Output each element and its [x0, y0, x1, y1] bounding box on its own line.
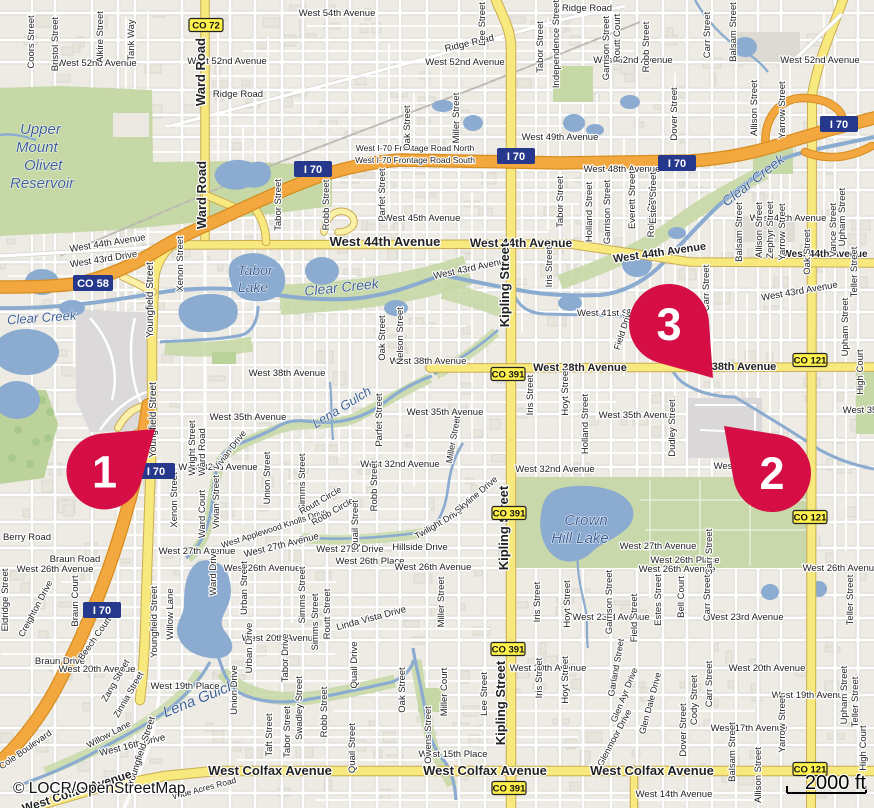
svg-text:Tabor Street: Tabor Street [555, 176, 566, 228]
svg-text:Dover Street: Dover Street [678, 703, 689, 757]
svg-text:Xenon Street: Xenon Street [169, 472, 180, 528]
svg-text:Allison Street: Allison Street [754, 202, 765, 258]
svg-text:Alkire Street: Alkire Street [95, 11, 106, 63]
svg-text:Owens Street: Owens Street [423, 706, 434, 764]
svg-text:West I-70 Frontage Road South: West I-70 Frontage Road South [355, 155, 475, 165]
svg-text:CO 391: CO 391 [492, 645, 525, 656]
svg-text:Carr Street: Carr Street [704, 528, 715, 575]
svg-text:Allison Street: Allison Street [753, 747, 764, 803]
svg-text:Garrison Street: Garrison Street [601, 15, 612, 80]
svg-text:West 26th Avenue: West 26th Avenue [224, 563, 301, 574]
svg-text:Iris Street: Iris Street [532, 581, 543, 622]
svg-text:Garrison Street: Garrison Street [604, 569, 615, 634]
svg-text:I 70: I 70 [304, 164, 322, 176]
svg-text:Union Drive: Union Drive [229, 665, 240, 715]
svg-text:CO 121: CO 121 [794, 356, 827, 367]
svg-text:38th Avenue: 38th Avenue [712, 361, 777, 373]
svg-text:Tabor Street: Tabor Street [282, 706, 293, 758]
svg-text:Oak Street: Oak Street [802, 229, 813, 275]
svg-text:West 14th Avenue: West 14th Avenue [636, 789, 713, 800]
svg-text:Berry Road: Berry Road [3, 532, 51, 543]
svg-text:Willow Lane: Willow Lane [165, 588, 176, 639]
svg-text:West 19th Place: West 19th Place [150, 681, 219, 692]
svg-text:CO 72: CO 72 [192, 21, 219, 32]
svg-text:Lee Street: Lee Street [479, 672, 490, 716]
svg-text:West 20th Avenue: West 20th Avenue [510, 663, 587, 674]
svg-text:Allison Street: Allison Street [749, 80, 760, 136]
svg-text:West 20th Avenue: West 20th Avenue [729, 663, 806, 674]
svg-text:West 44th Avenue: West 44th Avenue [330, 234, 441, 249]
svg-text:Bristol Street: Bristol Street [50, 16, 61, 71]
svg-text:Upper: Upper [20, 121, 62, 138]
svg-text:Miller Street: Miller Street [451, 92, 462, 143]
svg-text:CO 391: CO 391 [492, 370, 525, 381]
svg-text:Cody Street: Cody Street [689, 675, 700, 726]
svg-text:Teller Street: Teller Street [849, 246, 860, 297]
svg-text:Xenon Street: Xenon Street [175, 236, 186, 292]
svg-text:West 26th Avenue: West 26th Avenue [395, 562, 472, 573]
svg-text:Youngfield Street: Youngfield Street [149, 586, 160, 658]
svg-text:Tabor: Tabor [237, 262, 274, 278]
svg-text:CO 58: CO 58 [77, 278, 109, 290]
svg-text:West 54th Avenue: West 54th Avenue [299, 8, 376, 19]
svg-text:Hillside Drive: Hillside Drive [392, 542, 447, 553]
svg-text:Robb Street: Robb Street [369, 460, 380, 511]
svg-text:Swadley Street: Swadley Street [294, 676, 305, 740]
svg-text:Hoyt Street: Hoyt Street [560, 368, 571, 416]
svg-text:Oak Street: Oak Street [397, 667, 408, 713]
svg-text:West 35th Avenue: West 35th Avenue [599, 410, 676, 421]
svg-text:Simms Street: Simms Street [310, 593, 321, 650]
svg-text:Ward Drive: Ward Drive [208, 548, 219, 595]
svg-text:Zephyr Street: Zephyr Street [765, 201, 776, 259]
svg-text:Iris Street: Iris Street [525, 374, 536, 415]
svg-text:Lake: Lake [238, 279, 269, 295]
svg-text:Olivet: Olivet [24, 157, 63, 174]
svg-text:West 26th Avenue: West 26th Avenue [17, 564, 94, 575]
svg-text:Braun Road: Braun Road [50, 554, 101, 565]
svg-text:Teller Street: Teller Street [850, 676, 861, 727]
svg-text:High Court: High Court [858, 725, 869, 771]
svg-text:West 35th Avenue: West 35th Avenue [407, 407, 484, 418]
svg-text:Ward Court: Ward Court [197, 490, 208, 539]
svg-text:Independence Street: Independence Street [551, 0, 562, 88]
svg-text:West 35th Avenue: West 35th Avenue [210, 412, 287, 423]
svg-text:Tabor Street: Tabor Street [273, 179, 284, 231]
svg-text:Vivian Street: Vivian Street [211, 475, 222, 529]
svg-text:Robb Street: Robb Street [321, 179, 332, 230]
svg-text:Upham Street: Upham Street [839, 665, 850, 724]
svg-text:Lee Street: Lee Street [477, 2, 488, 46]
svg-text:Tabor Drive: Tabor Drive [280, 634, 291, 683]
svg-text:Robb Street: Robb Street [319, 686, 330, 737]
svg-text:Upham Street: Upham Street [840, 297, 851, 356]
svg-text:Dover Street: Dover Street [669, 87, 680, 141]
svg-text:3: 3 [656, 299, 681, 350]
svg-text:Carr Street: Carr Street [702, 11, 713, 58]
svg-text:Holland Street: Holland Street [584, 182, 595, 243]
svg-text:2000 ft: 2000 ft [805, 772, 867, 794]
svg-text:Estes Street: Estes Street [648, 172, 659, 224]
svg-text:Ridge Road: Ridge Road [213, 89, 263, 100]
svg-text:West Colfax Avenue: West Colfax Avenue [423, 763, 547, 778]
svg-text:Yarrow Street: Yarrow Street [777, 203, 788, 261]
svg-text:Garrison Street: Garrison Street [602, 179, 613, 244]
svg-text:Yarrow Street: Yarrow Street [777, 695, 788, 753]
svg-text:Mount: Mount [16, 139, 59, 156]
svg-text:West 44th Avenue: West 44th Avenue [470, 236, 573, 250]
svg-text:West 45th Avenue: West 45th Avenue [384, 213, 461, 224]
svg-text:Teller Street: Teller Street [845, 574, 856, 625]
svg-text:Coors Street: Coors Street [26, 15, 37, 69]
svg-text:I 70: I 70 [147, 466, 165, 478]
svg-text:Hill Lake: Hill Lake [551, 530, 609, 547]
svg-text:Routt Street: Routt Street [322, 588, 333, 639]
svg-text:West I-70 Frontage Road North: West I-70 Frontage Road North [356, 143, 475, 153]
svg-text:West 35: West 35 [843, 405, 874, 416]
svg-text:Holland Street: Holland Street [580, 394, 591, 455]
svg-text:Hoyt Street: Hoyt Street [562, 580, 573, 628]
svg-text:I 70: I 70 [830, 119, 848, 131]
svg-text:Ridge Road: Ridge Road [562, 3, 612, 14]
svg-text:Robb Street: Robb Street [641, 21, 652, 72]
svg-text:Tabor Street: Tabor Street [535, 21, 546, 73]
svg-text:High Court: High Court [855, 349, 866, 395]
svg-text:Urban Street: Urban Street [239, 561, 250, 615]
svg-text:West 26th Avenue: West 26th Avenue [803, 563, 874, 574]
svg-text:Kipling Street: Kipling Street [496, 485, 511, 570]
svg-text:West 27th Avenue: West 27th Avenue [620, 541, 697, 552]
svg-text:Iris Street: Iris Street [544, 246, 555, 287]
svg-text:Wes: Wes [714, 461, 733, 472]
svg-text:Routt Court: Routt Court [612, 13, 623, 62]
svg-text:Oak Street: Oak Street [377, 315, 388, 361]
svg-text:Tank Way: Tank Way [126, 19, 137, 61]
svg-text:Kipling Street: Kipling Street [497, 242, 512, 327]
svg-text:Balsam Street: Balsam Street [727, 722, 738, 782]
svg-text:Crown: Crown [564, 512, 607, 529]
svg-text:Field Street: Field Street [629, 593, 640, 642]
svg-text:Ward Road: Ward Road [194, 161, 209, 229]
svg-text:Hoyt Street: Hoyt Street [560, 656, 571, 704]
svg-text:Kipling Street: Kipling Street [493, 660, 508, 745]
svg-text:West 17th Avenue: West 17th Avenue [711, 723, 788, 734]
svg-text:West 23rd Avenue: West 23rd Avenue [706, 612, 783, 623]
svg-text:Youngfield Street: Youngfield Street [145, 262, 156, 338]
svg-text:Bell Court: Bell Court [676, 576, 687, 618]
svg-text:Taft Street: Taft Street [264, 713, 275, 757]
svg-text:Miller Street: Miller Street [436, 576, 447, 627]
svg-text:CO 391: CO 391 [493, 784, 526, 795]
svg-text:Quail Street: Quail Street [350, 500, 361, 551]
svg-text:Quail Drive: Quail Drive [349, 642, 360, 689]
svg-text:Iris Street: Iris Street [534, 657, 545, 698]
svg-text:West 52nd Avenue: West 52nd Avenue [780, 55, 859, 66]
svg-text:Balsam Street: Balsam Street [728, 2, 739, 62]
svg-text:Balsam Street: Balsam Street [734, 202, 745, 262]
svg-text:Miller Court: Miller Court [439, 667, 450, 716]
svg-text:West Colfax Avenue: West Colfax Avenue [590, 763, 714, 778]
svg-text:Urban Drive: Urban Drive [244, 623, 255, 674]
svg-text:Parfet Street: Parfet Street [377, 168, 388, 222]
svg-text:I 70: I 70 [507, 151, 525, 163]
svg-text:Dudley Street: Dudley Street [667, 399, 678, 457]
svg-text:West 32nd Avenue: West 32nd Avenue [515, 464, 594, 475]
svg-text:Ward Road: Ward Road [197, 428, 208, 476]
svg-text:Yarrow Street: Yarrow Street [777, 81, 788, 139]
svg-text:West 52nd Avenue: West 52nd Avenue [425, 57, 504, 68]
svg-text:Upham Street: Upham Street [837, 187, 848, 246]
svg-text:Nelson Street: Nelson Street [395, 307, 406, 365]
svg-text:1: 1 [92, 447, 117, 498]
svg-text:CO 121: CO 121 [794, 513, 827, 524]
svg-text:West 49th Avenue: West 49th Avenue [522, 132, 599, 143]
svg-text:Parfet Street: Parfet Street [374, 393, 385, 447]
svg-text:Quail Street: Quail Street [347, 723, 358, 774]
svg-text:Simms Street: Simms Street [297, 566, 308, 623]
svg-text:Everett Street: Everett Street [627, 171, 638, 229]
svg-text:Braun Court: Braun Court [70, 575, 81, 627]
svg-text:I 70: I 70 [93, 605, 111, 617]
svg-text:Ward Road: Ward Road [193, 38, 208, 106]
svg-text:2: 2 [759, 448, 784, 499]
svg-text:Carr Street: Carr Street [702, 574, 713, 621]
svg-text:Oak Street: Oak Street [402, 105, 413, 151]
svg-text:I 70: I 70 [668, 158, 686, 170]
svg-text:CO 391: CO 391 [493, 509, 526, 520]
svg-text:West 38th Avenue: West 38th Avenue [533, 362, 627, 374]
svg-text:© LOCR/OpenStreetMap: © LOCR/OpenStreetMap [13, 780, 186, 797]
svg-text:Carr Street: Carr Street [704, 660, 715, 707]
svg-text:West Colfax Avenue: West Colfax Avenue [208, 763, 332, 778]
svg-text:Estes Street: Estes Street [653, 574, 664, 626]
svg-text:Union Street: Union Street [262, 451, 273, 504]
svg-text:Reservoir: Reservoir [10, 175, 75, 192]
svg-text:West 38th Avenue: West 38th Avenue [249, 368, 326, 379]
svg-text:Eldridge Street: Eldridge Street [0, 568, 11, 631]
